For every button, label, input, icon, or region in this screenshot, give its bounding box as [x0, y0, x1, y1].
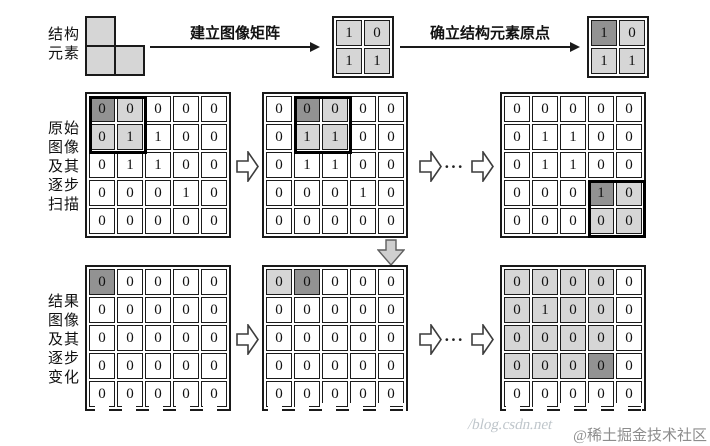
result-image-label: 结果 图像 及其 逐步 变化	[42, 293, 86, 388]
matrix-cell: 0	[201, 96, 227, 122]
label-line: 及其	[42, 158, 86, 177]
matrix-cell: 0	[504, 297, 530, 323]
matrix-cell: 0	[350, 353, 376, 379]
matrix-cell: 0	[201, 180, 227, 206]
label-line: 逐步	[42, 350, 86, 369]
matrix-cell: 0	[145, 269, 171, 295]
matrix-cell: 0	[350, 325, 376, 351]
matrix-cell: 0	[616, 124, 642, 150]
matrix-cell: 0	[378, 96, 404, 122]
original-matrix-step2: 0000001100011000001000000	[262, 92, 408, 238]
matrix-cell: 0	[89, 180, 115, 206]
matrix-cell: 0	[560, 208, 586, 234]
matrix-cell: 0	[201, 152, 227, 178]
matrix-cell: 0	[619, 20, 645, 46]
matrix-cell: 0	[145, 297, 171, 323]
arrow-line	[400, 46, 573, 48]
matrix-cell: 0	[616, 269, 642, 295]
matrix-cell: 0	[117, 96, 143, 122]
arrow-head-icon	[310, 42, 320, 52]
matrix-cell: 1	[619, 48, 645, 74]
hollow-right-arrow-icon	[236, 151, 259, 182]
label-line: 及其	[42, 331, 86, 350]
matrix-cell: 0	[266, 325, 292, 351]
matrix-cell: 0	[201, 208, 227, 234]
matrix-cell: 0	[504, 180, 530, 206]
matrix-cell: 0	[560, 325, 586, 351]
matrix-cell: 0	[504, 96, 530, 122]
matrix-cell: 0	[588, 124, 614, 150]
matrix-cell: 0	[201, 124, 227, 150]
matrix-cell: 0	[89, 124, 115, 150]
morphology-diagram: 结构 元素 建立图像矩阵 1011 确立结构元素原点 1011 原始 图像 及其…	[0, 0, 710, 446]
matrix-cell: 0	[532, 96, 558, 122]
matrix-cell: 0	[322, 208, 348, 234]
matrix-cell: 1	[145, 152, 171, 178]
matrix-cell: 0	[294, 353, 320, 379]
matrix-cell: 0	[145, 353, 171, 379]
label-line: 结果	[42, 293, 86, 312]
label-line: 结构	[42, 26, 86, 45]
matrix-cell: 1	[294, 124, 320, 150]
matrix-cell: 0	[173, 353, 199, 379]
matrix-cell: 1	[336, 48, 362, 74]
matrix-cell: 0	[266, 297, 292, 323]
matrix-cell: 0	[89, 208, 115, 234]
matrix-cell: 0	[350, 269, 376, 295]
matrix-cell: 0	[201, 325, 227, 351]
down-arrow-icon	[377, 239, 405, 266]
matrix-cell: 0	[588, 269, 614, 295]
matrix-cell: 0	[201, 353, 227, 379]
matrix-cell: 1	[588, 180, 614, 206]
hollow-right-arrow-icon	[471, 324, 494, 355]
matrix-cell: 0	[145, 325, 171, 351]
matrix-cell: 0	[322, 297, 348, 323]
matrix-cell: 0	[322, 180, 348, 206]
structure-element-label: 结构 元素	[42, 26, 86, 64]
matrix-cell: 0	[532, 325, 558, 351]
matrix-cell: 0	[173, 96, 199, 122]
matrix-cell: 0	[504, 208, 530, 234]
matrix-cell: 0	[266, 180, 292, 206]
matrix-cell: 0	[117, 208, 143, 234]
matrix-cell: 1	[117, 152, 143, 178]
watermark-url: /blog.csdn.net	[466, 417, 554, 434]
matrix-cell: 0	[378, 124, 404, 150]
matrix-cell: 0	[616, 96, 642, 122]
matrix-cell: 0	[532, 269, 558, 295]
hollow-right-arrow-icon	[419, 324, 442, 355]
matrix-cell: 0	[350, 208, 376, 234]
matrix-cell: 0	[560, 180, 586, 206]
kernel-matrix: 1011	[332, 16, 394, 78]
structure-square	[85, 45, 116, 76]
ellipsis: ···	[440, 330, 468, 350]
matrix-cell: 0	[89, 353, 115, 379]
matrix-cell: 0	[350, 124, 376, 150]
matrix-cell: 0	[173, 269, 199, 295]
build-matrix-arrow: 建立图像矩阵	[150, 12, 320, 48]
matrix-cell: 0	[89, 269, 115, 295]
result-matrix-step1: 0000000000000000000000000	[85, 265, 231, 411]
matrix-cell: 0	[294, 325, 320, 351]
hollow-right-arrow-icon	[419, 151, 442, 182]
matrix-cell: 0	[532, 353, 558, 379]
matrix-cell: 1	[117, 124, 143, 150]
matrix-cell: 0	[588, 208, 614, 234]
matrix-cell: 1	[560, 152, 586, 178]
matrix-cell: 0	[504, 353, 530, 379]
matrix-cell: 1	[560, 124, 586, 150]
matrix-cell: 0	[173, 325, 199, 351]
matrix-cell: 0	[201, 269, 227, 295]
matrix-cell: 0	[504, 152, 530, 178]
matrix-cell: 0	[616, 180, 642, 206]
arrow-line	[150, 46, 313, 48]
matrix-cell: 0	[201, 297, 227, 323]
matrix-cell: 0	[504, 325, 530, 351]
matrix-cell: 0	[294, 297, 320, 323]
matrix-cell: 0	[266, 124, 292, 150]
matrix-cell: 0	[266, 269, 292, 295]
watermark-erase-strip	[506, 403, 642, 412]
set-origin-arrow-label: 确立结构元素原点	[400, 22, 580, 43]
matrix-cell: 0	[173, 297, 199, 323]
matrix-cell: 0	[294, 208, 320, 234]
matrix-cell: 0	[117, 180, 143, 206]
label-line: 图像	[42, 312, 86, 331]
matrix-cell: 0	[364, 20, 390, 46]
kernel-matrix-with-origin: 1011	[587, 16, 649, 78]
label-line: 扫描	[42, 196, 86, 215]
matrix-cell: 0	[560, 353, 586, 379]
build-matrix-arrow-label: 建立图像矩阵	[150, 22, 320, 43]
original-image-label: 原始 图像 及其 逐步 扫描	[42, 120, 86, 215]
matrix-cell: 0	[378, 152, 404, 178]
matrix-cell: 0	[117, 297, 143, 323]
matrix-cell: 0	[560, 96, 586, 122]
matrix-cell: 1	[350, 180, 376, 206]
label-line: 元素	[42, 45, 86, 64]
matrix-cell: 0	[266, 353, 292, 379]
matrix-cell: 0	[322, 96, 348, 122]
structure-square	[85, 16, 116, 47]
matrix-cell: 0	[173, 208, 199, 234]
matrix-cell: 0	[560, 297, 586, 323]
matrix-cell: 0	[504, 124, 530, 150]
matrix-cell: 1	[294, 152, 320, 178]
original-matrix-step1: 0000001100011000001000000	[85, 92, 231, 238]
matrix-cell: 1	[532, 152, 558, 178]
watermark-erase-strip	[95, 403, 227, 412]
matrix-cell: 1	[173, 180, 199, 206]
matrix-cell: 0	[145, 96, 171, 122]
matrix-cell: 0	[145, 180, 171, 206]
matrix-cell: 0	[588, 297, 614, 323]
set-origin-arrow: 确立结构元素原点	[400, 12, 580, 48]
matrix-cell: 0	[616, 353, 642, 379]
matrix-cell: 0	[350, 297, 376, 323]
matrix-cell: 0	[588, 325, 614, 351]
structure-square	[114, 45, 145, 76]
watermark-erase-strip	[268, 403, 406, 412]
matrix-cell: 1	[364, 48, 390, 74]
label-line: 原始	[42, 120, 86, 139]
original-matrix-final: 0000001100011000001000000	[500, 92, 646, 238]
matrix-cell: 0	[378, 269, 404, 295]
matrix-cell: 0	[89, 297, 115, 323]
matrix-cell: 0	[378, 297, 404, 323]
matrix-cell: 0	[588, 152, 614, 178]
matrix-cell: 0	[322, 353, 348, 379]
ellipsis: ···	[440, 157, 468, 177]
matrix-cell: 0	[350, 96, 376, 122]
matrix-cell: 1	[591, 48, 617, 74]
hollow-right-arrow-icon	[236, 324, 259, 355]
matrix-cell: 0	[560, 269, 586, 295]
matrix-cell: 0	[89, 96, 115, 122]
matrix-cell: 0	[378, 180, 404, 206]
matrix-cell: 0	[616, 325, 642, 351]
matrix-cell: 0	[588, 353, 614, 379]
matrix-cell: 0	[616, 208, 642, 234]
label-line: 变化	[42, 369, 86, 388]
label-line: 图像	[42, 139, 86, 158]
matrix-cell: 0	[378, 208, 404, 234]
result-matrix-step2: 0000000000000000000000000	[262, 265, 408, 411]
matrix-cell: 0	[294, 96, 320, 122]
matrix-cell: 0	[89, 152, 115, 178]
matrix-cell: 1	[532, 297, 558, 323]
matrix-cell: 0	[588, 96, 614, 122]
hollow-right-arrow-icon	[471, 151, 494, 182]
matrix-cell: 0	[173, 152, 199, 178]
matrix-cell: 0	[117, 269, 143, 295]
matrix-cell: 0	[504, 269, 530, 295]
watermark-credit: @稀土掘金技术社区	[573, 424, 707, 445]
matrix-cell: 0	[350, 152, 376, 178]
matrix-cell: 0	[266, 152, 292, 178]
matrix-cell: 0	[89, 325, 115, 351]
matrix-cell: 0	[322, 325, 348, 351]
matrix-cell: 1	[591, 20, 617, 46]
matrix-cell: 0	[294, 269, 320, 295]
matrix-cell: 0	[266, 96, 292, 122]
matrix-cell: 0	[378, 353, 404, 379]
matrix-cell: 0	[145, 208, 171, 234]
matrix-cell: 0	[378, 325, 404, 351]
matrix-cell: 1	[336, 20, 362, 46]
matrix-cell: 1	[322, 124, 348, 150]
matrix-cell: 0	[532, 180, 558, 206]
result-matrix-final: 0000001000000000000000000	[500, 265, 646, 411]
matrix-cell: 1	[145, 124, 171, 150]
matrix-cell: 0	[173, 124, 199, 150]
label-line: 逐步	[42, 177, 86, 196]
matrix-cell: 0	[322, 269, 348, 295]
matrix-cell: 0	[266, 208, 292, 234]
matrix-cell: 0	[616, 297, 642, 323]
matrix-cell: 0	[532, 208, 558, 234]
matrix-cell: 0	[616, 152, 642, 178]
matrix-cell: 1	[322, 152, 348, 178]
matrix-cell: 0	[294, 180, 320, 206]
matrix-cell: 0	[117, 325, 143, 351]
matrix-cell: 1	[532, 124, 558, 150]
arrow-head-icon	[570, 42, 580, 52]
matrix-cell: 0	[117, 353, 143, 379]
